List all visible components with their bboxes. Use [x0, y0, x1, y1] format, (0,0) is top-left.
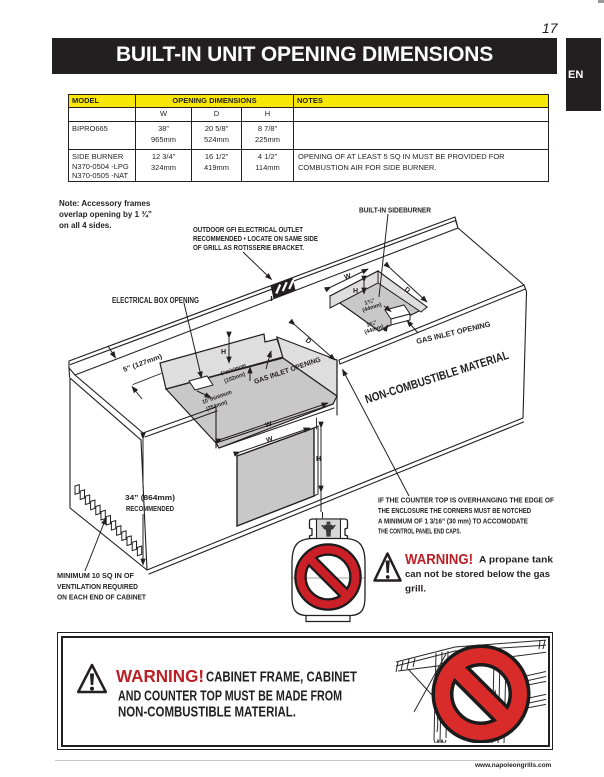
svg-text:NON-COMBUSTIBLE MATERIAL.: NON-COMBUSTIBLE MATERIAL.: [118, 704, 296, 721]
svg-text:WARNING!: WARNING!: [116, 666, 204, 686]
svg-text:AND COUNTER TOP MUST BE MADE F: AND COUNTER TOP MUST BE MADE FROM: [118, 688, 342, 705]
svg-text:CABINET FRAME, CABINET: CABINET FRAME, CABINET: [206, 669, 357, 686]
